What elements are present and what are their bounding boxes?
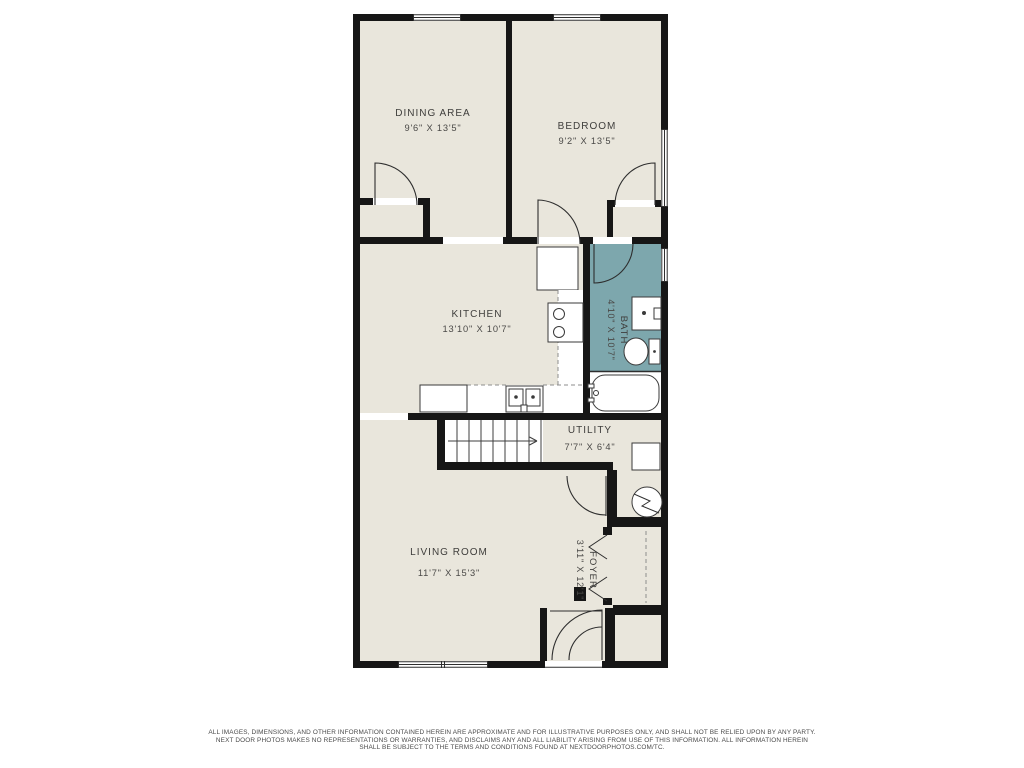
electrical-panel-icon bbox=[632, 487, 662, 517]
bath-sink bbox=[632, 297, 661, 330]
floor-plan: DINING AREA 9'6" X 13'5" BEDROOM 9'2" X … bbox=[353, 14, 668, 668]
svg-text:7'7" X 6'4": 7'7" X 6'4" bbox=[565, 442, 616, 452]
svg-text:BEDROOM: BEDROOM bbox=[558, 121, 617, 132]
stove bbox=[548, 303, 583, 342]
bathtub bbox=[588, 375, 659, 411]
window-bedroom bbox=[553, 14, 601, 21]
disclaimer-line-2: NEXT DOOR PHOTOS MAKES NO REPRESENTATION… bbox=[0, 737, 1024, 745]
disclaimer-line-1: ALL IMAGES, DIMENSIONS, AND OTHER INFORM… bbox=[0, 729, 1024, 737]
refrigerator bbox=[537, 247, 578, 290]
base-cabinet bbox=[420, 385, 467, 412]
svg-text:4'10" X 10'7": 4'10" X 10'7" bbox=[606, 299, 616, 360]
svg-text:3'11" X 12'1": 3'11" X 12'1" bbox=[575, 540, 585, 601]
svg-text:9'2" X 13'5": 9'2" X 13'5" bbox=[559, 136, 616, 146]
disclaimer-line-3: SHALL BE SUBJECT TO THE TERMS AND CONDIT… bbox=[0, 744, 1024, 752]
disclaimer: ALL IMAGES, DIMENSIONS, AND OTHER INFORM… bbox=[0, 729, 1024, 752]
svg-text:UTILITY: UTILITY bbox=[568, 425, 612, 436]
svg-text:LIVING ROOM: LIVING ROOM bbox=[410, 547, 488, 558]
stairs bbox=[445, 420, 543, 462]
kitchen-sink bbox=[506, 386, 543, 412]
svg-text:KITCHEN: KITCHEN bbox=[452, 309, 503, 320]
svg-text:FOYER: FOYER bbox=[587, 551, 598, 589]
svg-text:13'10" X 10'7": 13'10" X 10'7" bbox=[443, 324, 512, 334]
water-heater bbox=[632, 443, 660, 470]
svg-text:DINING AREA: DINING AREA bbox=[395, 108, 470, 119]
svg-text:11'7" X 15'3": 11'7" X 15'3" bbox=[418, 568, 480, 578]
window-bedroom-east bbox=[661, 129, 668, 207]
svg-text:BATH: BATH bbox=[618, 316, 629, 345]
window-bath-east bbox=[661, 248, 668, 282]
svg-text:9'6" X 13'5": 9'6" X 13'5" bbox=[405, 123, 462, 133]
entry-threshold bbox=[545, 661, 602, 668]
window-dining bbox=[413, 14, 461, 21]
window-living-double bbox=[398, 661, 488, 668]
